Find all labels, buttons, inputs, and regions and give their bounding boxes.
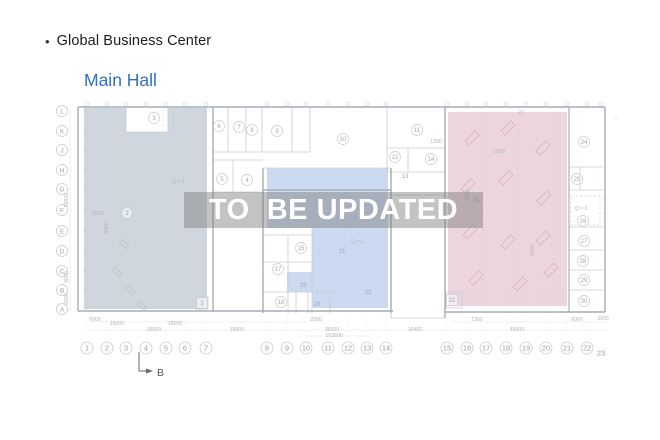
room-number: 11 [414, 128, 421, 134]
col-label: 22 [583, 344, 591, 353]
col-label: 1 [85, 344, 89, 353]
top-grid-tick [144, 102, 148, 106]
row-label: L [60, 108, 64, 115]
top-grid-tick [365, 102, 369, 106]
row-label: H [60, 167, 65, 174]
col-label: 5 [164, 344, 168, 353]
section-marker: B [139, 352, 164, 379]
dimension-label: 6000 [89, 317, 101, 323]
dimension-label: 18400 [408, 327, 423, 333]
room-number: 18 [278, 300, 285, 306]
plan-annotation: Q = 3 [172, 179, 185, 185]
col-label: 7 [204, 344, 208, 353]
room-number: 27 [581, 239, 588, 245]
top-grid-tick [204, 102, 208, 106]
dimension-label: 18000 [110, 321, 125, 327]
row-label: K [60, 128, 65, 135]
top-grid-tick [304, 102, 308, 106]
col-label: 14 [382, 344, 390, 353]
plan-annotation: 23 [518, 110, 524, 116]
room-number: 10 [340, 137, 347, 143]
dimension-label: 18000 [168, 321, 183, 327]
top-grid-tick [124, 102, 128, 106]
dimension-label: 2000 [310, 317, 322, 323]
row-label: J [60, 147, 63, 154]
top-grid-tick [265, 102, 269, 106]
plan-annotation: 60000 [64, 193, 70, 208]
plan-annotation: – [615, 115, 618, 121]
col-label: 17 [482, 344, 490, 353]
room-number: 30 [581, 299, 588, 305]
top-grid-tick [445, 102, 449, 106]
room-number: 15 [298, 246, 305, 252]
room-number: 26 [580, 219, 587, 225]
top-grid-tick [465, 102, 469, 106]
top-grid-tick [524, 102, 528, 106]
dimension-label: 1300 [471, 317, 483, 323]
dimension-label: 3000 [597, 316, 609, 322]
dimension-labels: 6000200013006000300018000180003600018000… [89, 316, 609, 339]
top-grid-tick [504, 102, 508, 106]
room-number: 14 [428, 157, 435, 163]
room-number: 17 [275, 267, 282, 273]
watermark-text: TO BE UPDATED [209, 194, 458, 227]
col-label: 13 [363, 344, 371, 353]
room-number: 12 [392, 155, 399, 161]
col-label: 8 [265, 344, 269, 353]
plan-annotation: 1300 [430, 139, 442, 145]
dimension-label: 153600 [325, 333, 342, 339]
plan-annotation: 2000 [92, 211, 104, 217]
col-label: 19 [522, 344, 530, 353]
dimension-label: 18000 [230, 327, 245, 333]
top-grid-tick [384, 102, 388, 106]
page: • Global Business Center Main Hall [0, 0, 660, 440]
room-number: 13 [402, 174, 409, 180]
top-grid-tick [183, 102, 187, 106]
col-label: 18 [502, 344, 510, 353]
room-number: 28 [580, 259, 587, 265]
col-label: 6 [183, 344, 187, 353]
plan-annotation: 6000 [64, 271, 70, 283]
col-label: 9 [285, 344, 289, 353]
room-number: 20 [314, 302, 321, 308]
col-label: 3 [124, 344, 128, 353]
plan-annotation: Q = 3 [575, 206, 588, 212]
row-label: G [59, 186, 64, 193]
top-grid-tick [585, 102, 589, 106]
col-label: 23 [597, 349, 605, 358]
col-label: 12 [344, 344, 352, 353]
top-grid-tick [285, 102, 289, 106]
col-label: 11 [324, 344, 332, 353]
col-label: 15 [443, 344, 451, 353]
top-grid-tick [599, 102, 603, 106]
plan-annotation: Q = 3 [351, 239, 364, 245]
col-label: 21 [563, 344, 571, 353]
top-grid-tick [565, 102, 569, 106]
dimension-label: 45000 [510, 327, 525, 333]
col-label: 4 [144, 344, 148, 353]
top-grid-tick [326, 102, 330, 106]
room-number: 19 [300, 283, 307, 289]
col-label: 20 [542, 344, 550, 353]
dimension-label: 6000 [571, 317, 583, 323]
room-number: 32 [449, 298, 456, 304]
row-label: D [60, 248, 65, 255]
top-grid-tick [544, 102, 548, 106]
col-label: 2 [105, 344, 109, 353]
plan-annotation: 6000 [64, 293, 70, 305]
room-number: 21 [339, 249, 346, 255]
row-label: F [60, 207, 64, 214]
room-number: 25 [574, 177, 581, 183]
plan-annotation: 5000 [104, 222, 110, 234]
room-number: 29 [581, 278, 588, 284]
top-grid-tick [105, 102, 109, 106]
col-label: 10 [302, 344, 310, 353]
top-grid-tick [164, 102, 168, 106]
middle-zone-highlight [267, 168, 388, 308]
room-number: 24 [581, 140, 588, 146]
row-label: A [60, 306, 65, 313]
plan-annotation: 6000 [530, 244, 536, 256]
plan-annotation: 1900 [493, 149, 505, 155]
top-grid-tick [346, 102, 350, 106]
top-grid-tick [85, 102, 89, 106]
dimension-label: 36000 [147, 327, 162, 333]
row-label: E [60, 228, 65, 235]
watermark-banner: TO BE UPDATED [184, 192, 483, 228]
col-label: 16 [463, 344, 471, 353]
top-grid-tick [484, 102, 488, 106]
section-marker-label: B [157, 367, 164, 379]
section-arrow-icon [146, 369, 153, 374]
room-number: 22 [365, 290, 372, 296]
